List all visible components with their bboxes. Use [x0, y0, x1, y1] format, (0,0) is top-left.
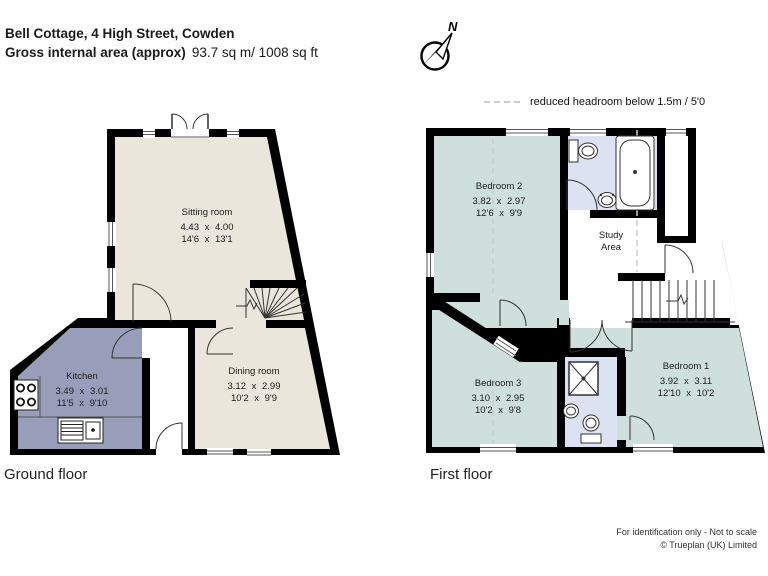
dashed-line-sample	[484, 101, 520, 103]
sitting-dining-opening	[216, 314, 266, 328]
vestibule-opening	[559, 300, 569, 325]
first-floor-label: First floor	[430, 466, 493, 483]
disclaimer-line1: For identification only - Not to scale	[616, 526, 757, 539]
void-recess	[665, 136, 688, 236]
room-label-sitting-room: Sitting room 4.43 x 4.00 14'6 x 13'1	[180, 207, 233, 246]
stair-wall	[250, 280, 306, 288]
study-door-opening	[657, 243, 665, 273]
sink-icon	[58, 418, 103, 443]
compass-icon: N	[405, 16, 467, 78]
gross-area-line: Gross internal area (approx)93.7 sq m/ 1…	[5, 43, 318, 62]
french-doors	[171, 114, 209, 138]
disclaimer-line2: © Trueplan (UK) Limited	[616, 539, 757, 552]
back-door-opening	[156, 448, 182, 457]
bathroom-door-opening	[568, 210, 590, 218]
ground-floor-label: Ground floor	[4, 466, 87, 483]
toilet-icon	[583, 415, 599, 431]
disclaimer: For identification only - Not to scale ©…	[616, 526, 757, 552]
compass-north-label: N	[448, 19, 458, 34]
basin-icon	[564, 404, 579, 418]
toilet-icon	[569, 140, 578, 162]
room-label-bedroom-1: Bedroom 1 3.92 x 3.11 12'10 x 10'2	[658, 361, 715, 400]
legend-text: reduced headroom below 1.5m / 5'0	[530, 96, 705, 108]
floorplan-page: Bell Cottage, 4 High Street, Cowden Gros…	[0, 0, 768, 576]
room-label-kitchen: Kitchen 3.49 x 3.01 11'5 x 9'10	[55, 371, 108, 410]
first-floor-plan: Bedroom 2 3.82 x 2.97 12'6 x 9'9 Study A…	[420, 110, 768, 465]
area-value: 93.7 sq m/ 1008 sq ft	[192, 45, 318, 60]
room-label-dining-room: Dining room 3.12 x 2.99 10'2 x 9'9	[227, 366, 280, 405]
shower-door-opening	[617, 416, 626, 440]
stove-icon	[14, 380, 38, 410]
area-label: Gross internal area (approx)	[5, 45, 186, 60]
page-title: Bell Cottage, 4 High Street, Cowden	[5, 24, 318, 43]
reduced-headroom-legend: reduced headroom below 1.5m / 5'0	[484, 96, 705, 108]
kitchen-door-opening	[142, 328, 150, 358]
room-label-study-area: Study Area	[599, 230, 623, 254]
ground-floor-plan: Sitting room 4.43 x 4.00 14'6 x 13'1 Din…	[0, 112, 348, 464]
room-label-bedroom-3: Bedroom 3 3.10 x 2.95 10'2 x 9'8	[471, 378, 524, 417]
header: Bell Cottage, 4 High Street, Cowden Gros…	[5, 24, 318, 62]
room-label-bedroom-2: Bedroom 2 3.82 x 2.97 12'6 x 9'9	[472, 181, 525, 220]
